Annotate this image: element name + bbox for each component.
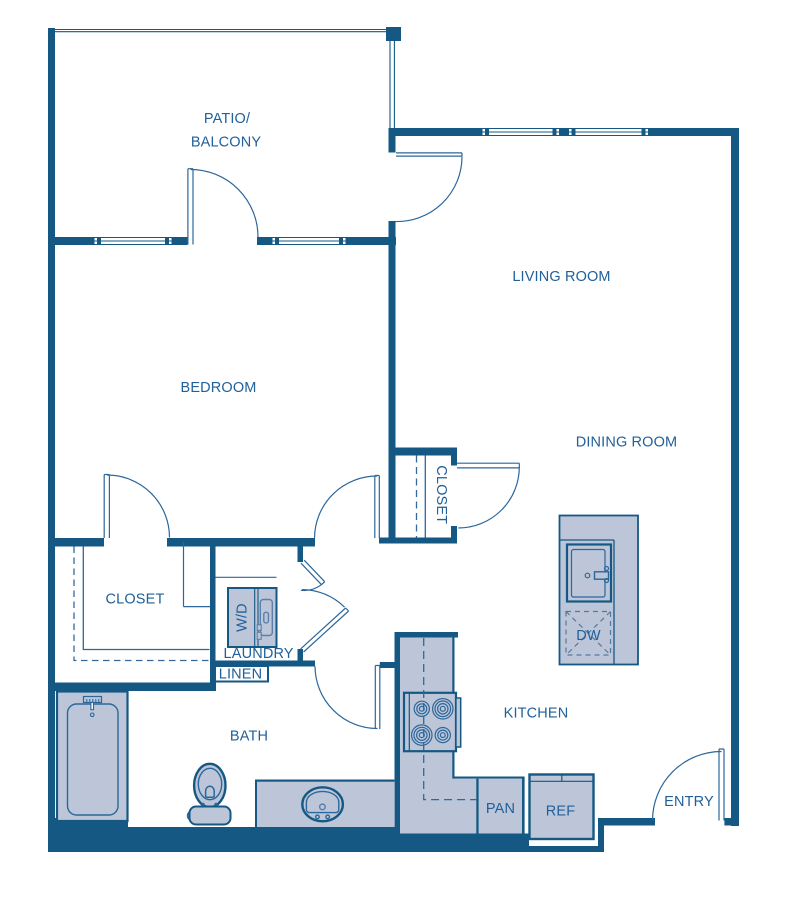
svg-text:LIVING ROOM: LIVING ROOM [512, 269, 610, 285]
svg-text:CLOSET: CLOSET [433, 465, 449, 524]
svg-text:ENTRY: ENTRY [664, 794, 714, 810]
svg-text:BALCONY: BALCONY [191, 135, 262, 151]
svg-text:PAN: PAN [486, 801, 515, 817]
svg-text:LINEN: LINEN [219, 667, 262, 683]
svg-text:PATIO/: PATIO/ [204, 111, 251, 127]
svg-text:KITCHEN: KITCHEN [504, 706, 569, 722]
svg-text:REF: REF [546, 804, 575, 820]
svg-text:W/D: W/D [235, 603, 251, 632]
svg-text:LAUNDRY: LAUNDRY [224, 646, 294, 662]
svg-text:BATH: BATH [230, 729, 268, 745]
svg-text:DW: DW [576, 628, 601, 644]
svg-text:BEDROOM: BEDROOM [181, 380, 257, 396]
svg-text:DINING ROOM: DINING ROOM [576, 435, 678, 451]
svg-text:CLOSET: CLOSET [106, 592, 165, 608]
